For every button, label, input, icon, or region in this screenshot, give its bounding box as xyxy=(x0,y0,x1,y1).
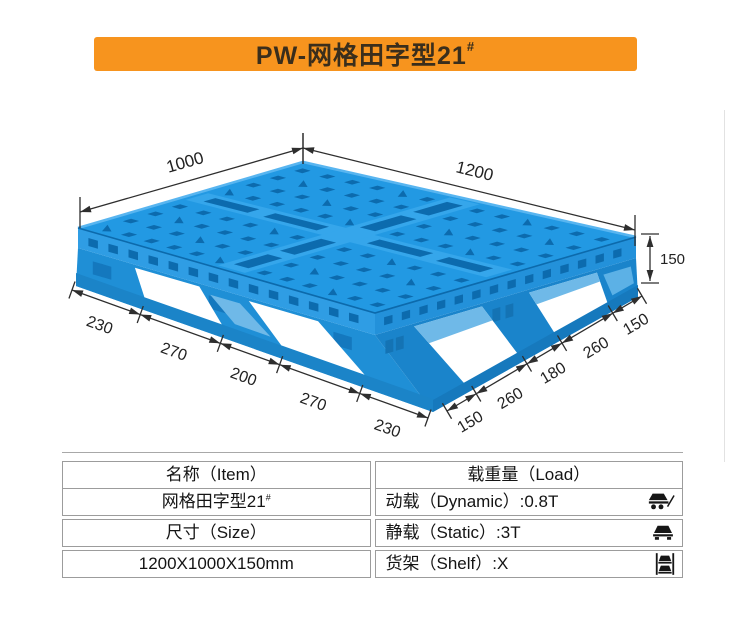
dim-label: 270 xyxy=(158,340,189,365)
dim-label: 180 xyxy=(538,359,570,387)
spec-load-header: 载重量（Load） xyxy=(375,461,684,489)
dim-label: 150 xyxy=(620,311,652,339)
spec-dynamic-load-row: 动载（Dynamic）:0.8T xyxy=(375,488,684,516)
spec-size-value: 1200X1000X150mm xyxy=(62,550,371,578)
page: PW-网格田字型21# 1000120015023027020027023015… xyxy=(0,0,730,635)
spec-table-left-column: 名称（Item） 网格田字型21# 尺寸（Size） 1200X1000X150… xyxy=(62,461,371,578)
spec-size-header: 尺寸（Size） xyxy=(62,519,371,547)
spec-item-header: 名称（Item） xyxy=(62,461,371,489)
dim-label: 150 xyxy=(455,408,487,436)
dim-label: 230 xyxy=(84,313,115,338)
spec-shelf-load-row: 货架（Shelf）:X xyxy=(375,550,684,578)
page-edge-line xyxy=(724,110,725,462)
dim-label: 1200 xyxy=(454,157,495,185)
spec-static-load-row: 静载（Static）:3T xyxy=(375,519,684,547)
shelf-load-icon xyxy=(655,553,675,575)
static-load-icon xyxy=(651,524,675,542)
dynamic-load-icon xyxy=(647,493,675,512)
dim-label: 260 xyxy=(495,385,527,413)
dim-label: 260 xyxy=(580,334,612,362)
dim-label: 230 xyxy=(372,417,403,442)
dim-label: 150 xyxy=(660,251,685,268)
dim-label: 270 xyxy=(298,390,329,415)
pallet-illustration: 1000120015023027020027023015026018026015… xyxy=(0,0,730,450)
spec-table-right-column: 载重量（Load） 动载（Dynamic）:0.8T 静载（Static）:3T xyxy=(375,461,684,578)
spec-table: 名称（Item） 网格田字型21# 尺寸（Size） 1200X1000X150… xyxy=(62,452,683,578)
dim-label: 200 xyxy=(228,365,259,390)
dim-label: 1000 xyxy=(164,148,206,177)
spec-item-value: 网格田字型21# xyxy=(62,488,371,516)
